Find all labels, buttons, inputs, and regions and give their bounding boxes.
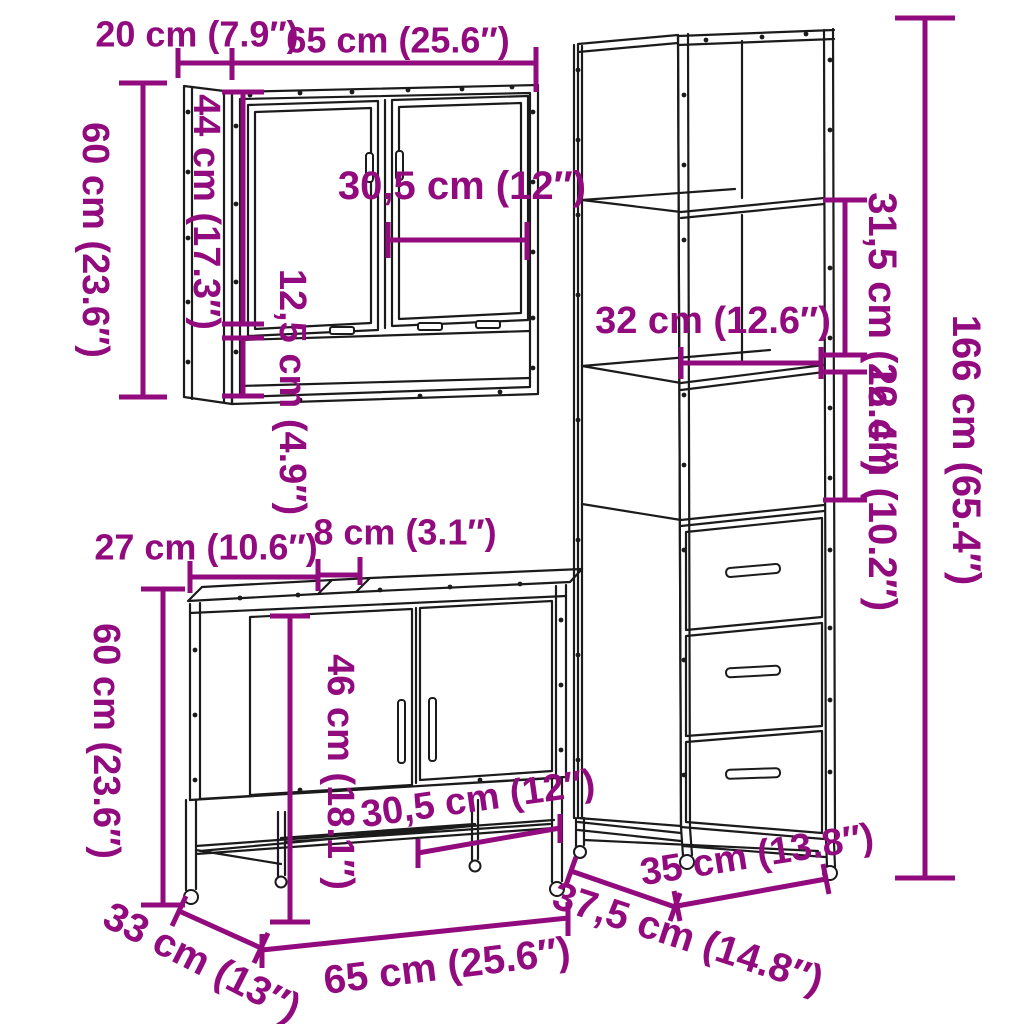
vanity-front-stiles	[190, 585, 566, 800]
mirror-cabinet-screws	[186, 85, 536, 403]
furniture-dimension-diagram: 20 cm (7.9″) 65 cm (25.6″) 60 cm (23.6″)…	[0, 0, 1024, 1024]
mirror-door-latch	[418, 323, 442, 330]
dim-line-mirror-door-width	[388, 222, 527, 260]
tall-cabinet-shelf-3	[582, 504, 824, 526]
mirror-shelf-height-label: 12,5 cm (4.9″)	[271, 269, 313, 515]
vanity-inner-height-label: 46 cm (18.1″)	[319, 654, 361, 890]
vanity-door-right	[420, 601, 552, 780]
tall-cabinet-front-frame	[678, 29, 835, 842]
drawer-handle	[726, 768, 780, 779]
tall-height-label: 166 cm (65.4″)	[944, 315, 988, 585]
vanity-door-handle-right	[429, 698, 436, 761]
mirror-door-latch	[476, 321, 500, 328]
vanity-gap-width-label: 8 cm (3.1″)	[313, 512, 496, 553]
tall-cabinet-drawer-3	[686, 731, 822, 833]
dim-line-vanity-height	[141, 589, 185, 905]
ball-foot	[574, 846, 586, 858]
tall-cabinet-screws	[576, 32, 833, 778]
ball-foot	[276, 877, 287, 888]
tall-cabinet-side-panel	[574, 35, 681, 826]
drawer-handle	[726, 564, 781, 578]
tall-cabinet-shelf-2	[582, 350, 824, 390]
vanity-cabinet-drawing	[184, 569, 582, 904]
mirror-depth-label: 20 cm (7.9″)	[95, 14, 298, 55]
dim-line-mirror-inner-height	[222, 92, 264, 324]
mirror-height-label: 60 cm (23.6″)	[74, 122, 116, 358]
tall-cabinet-shelf-1	[582, 189, 824, 218]
tall-cabinet-drawing	[574, 29, 837, 880]
dim-line-mirror-height	[119, 83, 167, 397]
vanity-height-label: 60 cm (23.6″)	[85, 623, 127, 859]
tall-middle-section-label: 26 cm (10.2″)	[860, 363, 904, 611]
tall-cabinet-drawer-2	[686, 623, 822, 736]
mirror-inner-height-label: 44 cm (17.3″)	[185, 94, 227, 330]
mirror-cabinet-drawing	[184, 85, 538, 404]
drawer-handle	[726, 666, 780, 678]
mirror-door-right	[392, 96, 528, 326]
ball-foot	[470, 861, 481, 872]
vanity-depth-label: 33 cm (13″)	[96, 894, 307, 1024]
tall-shelf-width-label: 32 cm (12.6″)	[595, 300, 831, 342]
dim-line-mirror-shelf-height	[222, 338, 264, 396]
dimension-labels: 20 cm (7.9″) 65 cm (25.6″) 60 cm (23.6″)…	[74, 14, 988, 1024]
dim-line-vanity-inner-height	[270, 616, 310, 922]
tall-depth-label: 37,5 cm (14.8″)	[547, 874, 828, 1003]
mirror-width-label: 65 cm (25.6″)	[286, 20, 509, 61]
vanity-door-handle-left	[398, 700, 405, 763]
mirror-door-width-label: 30,5 cm (12″)	[338, 164, 586, 208]
vanity-screws	[193, 582, 564, 793]
vanity-top-left-width-label: 27 cm (10.6″)	[94, 527, 317, 568]
mirror-door-latch	[330, 327, 354, 334]
